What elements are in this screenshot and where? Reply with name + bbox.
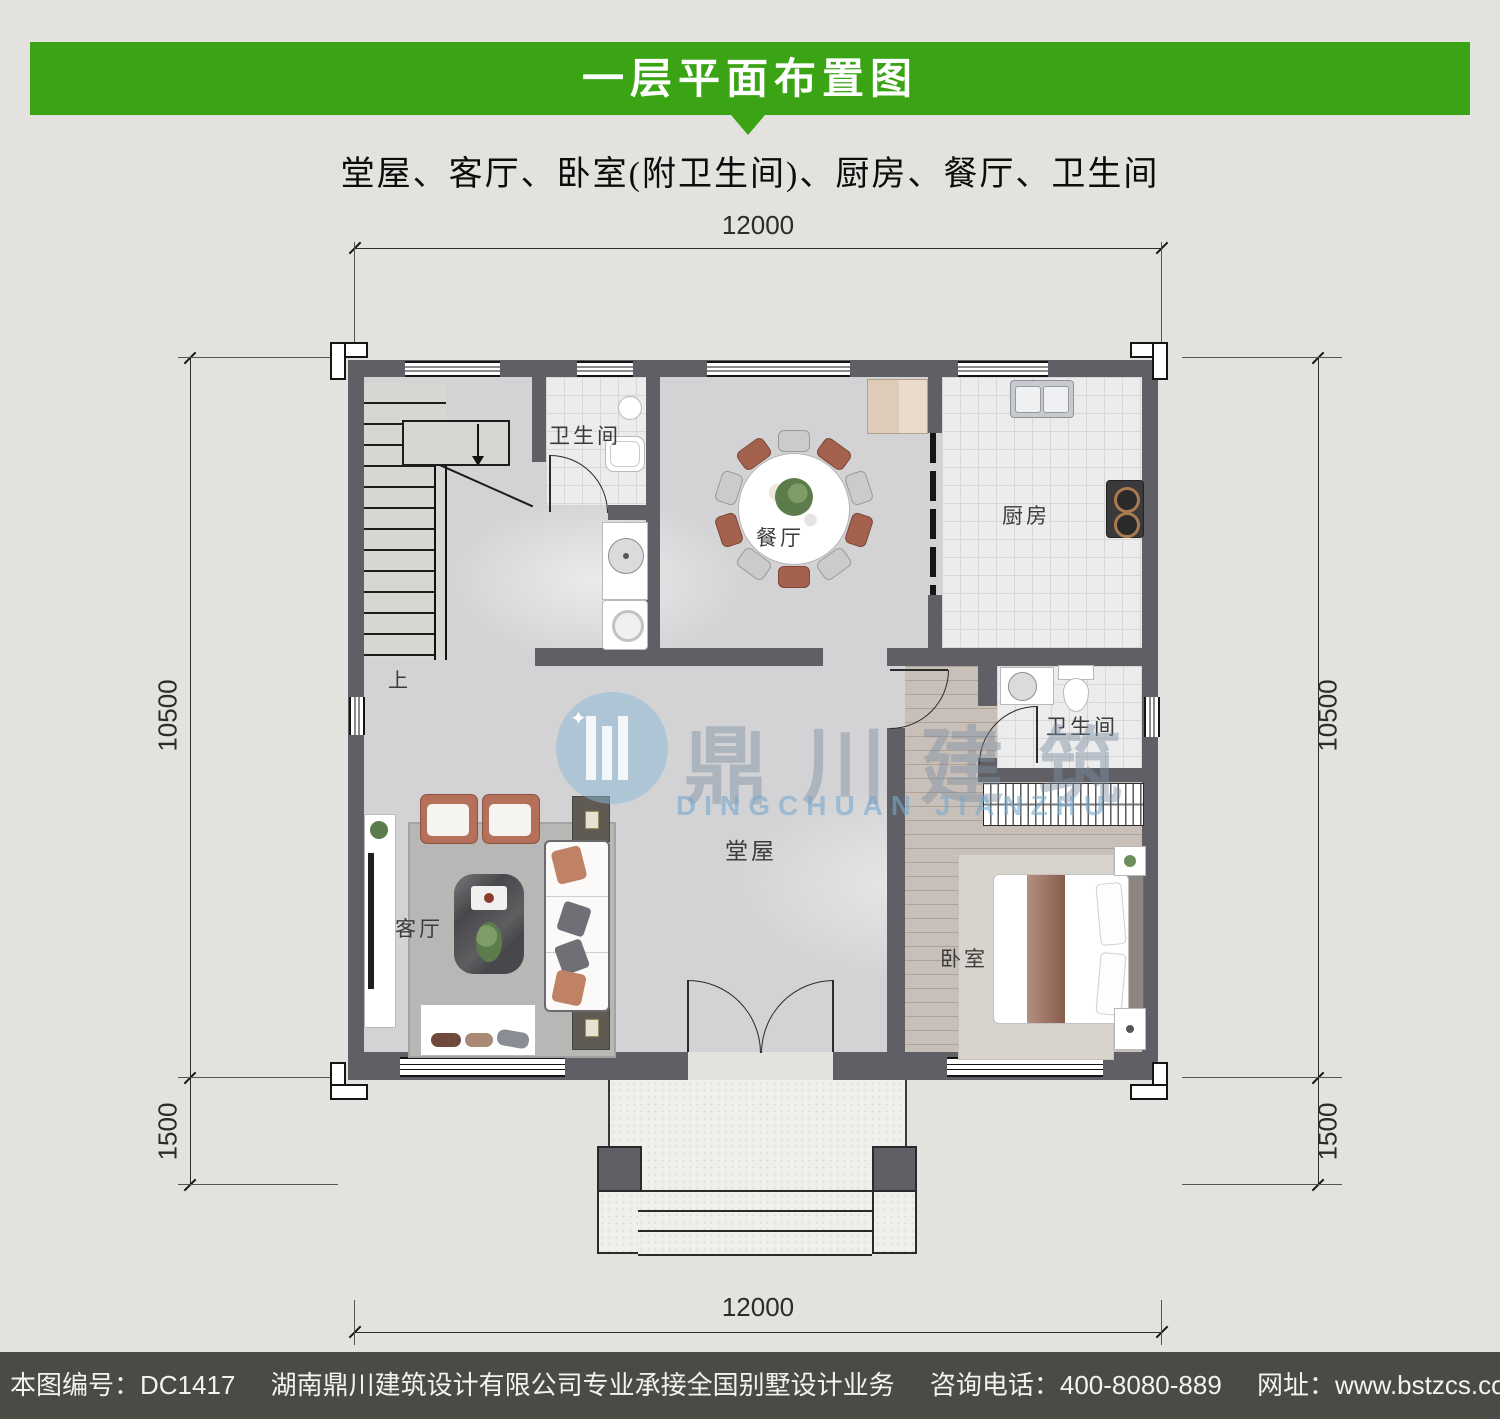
bed-runner — [1027, 875, 1065, 1023]
nightstand — [1114, 1008, 1146, 1050]
tv-console — [364, 814, 396, 1028]
bench-pillow — [496, 1028, 530, 1049]
dim-left-lower: 1500 — [153, 1072, 184, 1192]
dining-chair — [778, 430, 810, 452]
armchair — [420, 794, 478, 844]
table-plant — [476, 922, 502, 962]
dim-top: 12000 — [698, 210, 818, 241]
bath1-label: 卫生间 — [549, 420, 621, 450]
bench-pillow — [465, 1033, 493, 1047]
gas-stove — [1106, 480, 1144, 538]
bath1-basin — [618, 396, 642, 420]
logo-bar — [618, 716, 628, 780]
porch-column-base — [597, 1190, 642, 1254]
porch-column-base — [872, 1190, 917, 1254]
burner — [1114, 512, 1140, 538]
nightstand-lamp — [1126, 1025, 1134, 1033]
logo-bar — [602, 726, 612, 780]
kitchen-label: 厨房 — [1002, 500, 1050, 530]
dim-ext — [354, 242, 355, 354]
wall-bath1-right — [646, 377, 660, 666]
window — [400, 1057, 565, 1077]
tray-bowl — [484, 893, 494, 903]
nightstand-plant — [1124, 855, 1136, 867]
porch-column — [872, 1146, 917, 1194]
wall-bath1-left — [532, 377, 546, 462]
stairs-up-label: 上 — [388, 664, 411, 693]
living-label: 客厅 — [395, 913, 443, 943]
washing-machine — [602, 600, 648, 650]
dim-ext — [178, 1184, 338, 1185]
watermark-logo: ✦ — [556, 692, 668, 804]
bath2-basin — [1008, 672, 1037, 701]
armchair-cushion — [427, 804, 469, 836]
window — [405, 361, 500, 377]
table-lamp — [585, 1019, 599, 1037]
page-title: 一层平面布置图 — [30, 42, 1470, 115]
wall-kitchen-bottom — [887, 648, 1158, 666]
porch-step — [638, 1210, 872, 1232]
window — [577, 361, 633, 377]
kitchen-sink — [1010, 380, 1074, 418]
wall-kitchen-left-top — [928, 377, 942, 433]
dim-line-left — [190, 358, 191, 1185]
banner-pointer-triangle — [731, 115, 765, 135]
hall-label: 堂屋 — [725, 832, 777, 866]
wall-dining-hall — [535, 648, 823, 666]
porch-column — [597, 1146, 642, 1194]
footer-phone: 咨询电话：400-8080-889 — [930, 1370, 1222, 1400]
pillow — [1095, 952, 1126, 1016]
sofa-seam — [546, 896, 608, 897]
logo-bar — [586, 716, 596, 780]
table-plant — [775, 478, 813, 516]
watermark-en: DINGCHUAN JIANZHU — [676, 790, 1112, 822]
armchair — [482, 794, 540, 844]
armchair-cushion — [489, 804, 531, 836]
console-plant — [370, 821, 388, 839]
room-list-subtitle: 堂屋、客厅、卧室(附卫生间)、厨房、餐厅、卫生间 — [0, 146, 1500, 195]
corner-mark — [1152, 342, 1168, 380]
pillow — [1095, 882, 1126, 946]
dim-left-main: 10500 — [153, 656, 184, 776]
coffee-table — [454, 874, 524, 974]
sink-basin — [1015, 386, 1041, 413]
dim-ext — [1182, 357, 1342, 358]
stair-rail — [434, 450, 447, 660]
window — [707, 361, 850, 377]
window — [958, 361, 1048, 377]
sofa-pillow — [550, 845, 587, 885]
footer-bar: 本图编号：DC1417 湖南鼎川建筑设计有限公司专业承接全国别墅设计业务 咨询电… — [0, 1352, 1500, 1419]
footer-plan-number: 本图编号：DC1417 — [10, 1370, 235, 1400]
stair-upper-flight — [402, 420, 510, 466]
nightstand — [1114, 846, 1146, 876]
footer-website[interactable]: 网址：www.bstzcs.com — [1257, 1370, 1500, 1400]
stair-arrow-head — [472, 456, 484, 466]
burner — [1114, 487, 1140, 513]
corner-mark — [1130, 1084, 1168, 1100]
logo-star-icon: ✦ — [570, 706, 587, 731]
dim-ext — [178, 1077, 338, 1078]
stair-arrow-shaft — [477, 424, 479, 458]
dim-line-bottom — [355, 1332, 1162, 1333]
tv-screen — [368, 853, 374, 989]
sofa-pillow — [556, 900, 592, 937]
dining-chair — [778, 566, 810, 588]
porch-step — [638, 1230, 872, 1256]
porch-step — [638, 1190, 872, 1212]
dim-right-lower: 1500 — [1313, 1072, 1344, 1192]
title-banner: 一层平面布置图 — [30, 42, 1470, 115]
sofa-pillow — [551, 969, 587, 1007]
dining-cabinet — [867, 379, 928, 434]
bench — [420, 1004, 536, 1056]
dim-bottom: 12000 — [698, 1292, 818, 1323]
dim-ext — [1161, 242, 1162, 354]
table-lamp — [585, 811, 599, 829]
bedroom-label: 卧室 — [940, 943, 988, 973]
corner-mark — [330, 342, 346, 380]
dining-label: 餐厅 — [756, 522, 804, 552]
dim-right-main: 10500 — [1313, 656, 1344, 776]
bed — [993, 874, 1129, 1024]
dim-ext — [1161, 1300, 1162, 1345]
sofa — [544, 840, 610, 1012]
table-tray — [471, 886, 507, 910]
dim-ext — [354, 1300, 355, 1345]
bench-pillow — [431, 1033, 461, 1047]
dim-ext — [178, 357, 338, 358]
sink-basin — [1043, 386, 1069, 413]
kitchen-sliding-door[interactable] — [930, 433, 936, 595]
basin-drain — [623, 553, 629, 559]
cabinet-door — [899, 380, 927, 433]
footer-company: 湖南鼎川建筑设计有限公司专业承接全国别墅设计业务 — [271, 1370, 895, 1400]
window — [349, 697, 365, 735]
corner-mark — [330, 1084, 368, 1100]
window — [947, 1057, 1103, 1077]
wall-kitchen-left-bottom — [928, 595, 942, 648]
laundry-basin — [608, 538, 644, 574]
dim-line-top — [355, 248, 1162, 249]
washer-drum — [612, 610, 644, 642]
porch-slab — [608, 1080, 907, 1190]
